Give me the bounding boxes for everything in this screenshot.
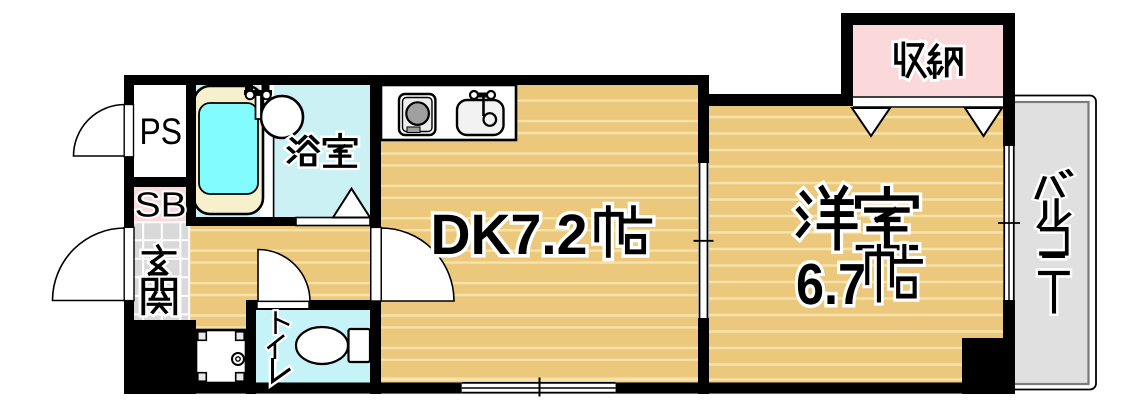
svg-text:SB: SB	[135, 186, 187, 225]
svg-text:DK7.2: DK7.2	[431, 203, 588, 267]
svg-text:PS: PS	[140, 111, 183, 152]
svg-text:6.7: 6.7	[796, 252, 866, 317]
